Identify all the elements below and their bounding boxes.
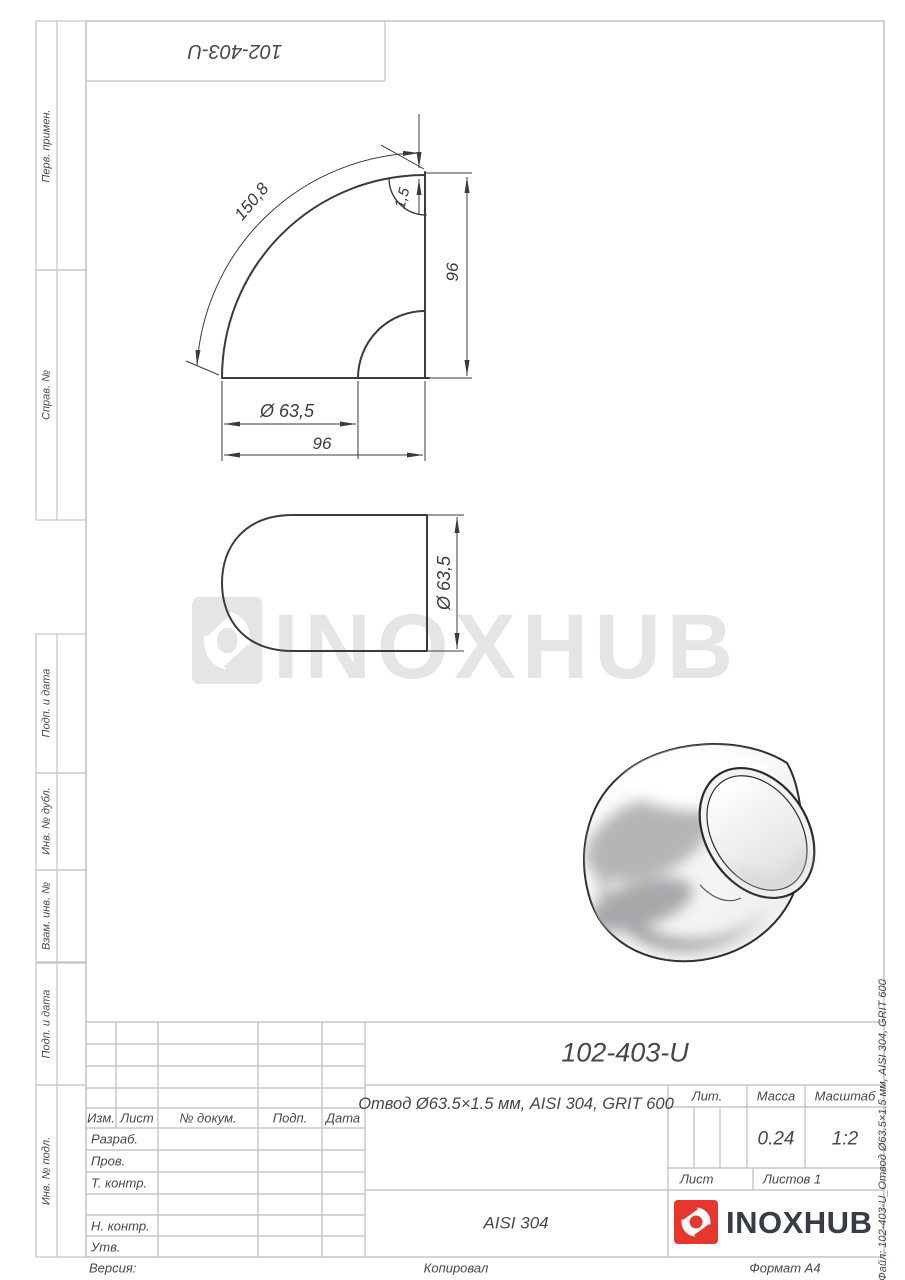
dimension-lines [186, 114, 472, 651]
tb-row-utv: Утв. [91, 1241, 121, 1254]
margin-boxes [36, 21, 86, 1257]
tb-col-podp: Подп. [273, 1112, 308, 1125]
dim-wall-thickness: 1,5 [392, 185, 414, 210]
inoxhub-logo-icon [674, 1200, 718, 1244]
tb-description: Отвод Ø63.5×1.5 мм, AISI 304, GRIT 600 [358, 1096, 674, 1113]
watermark: INOXHUB [192, 596, 739, 698]
drawing-sheet: INOXHUB [0, 0, 905, 1280]
margin-label-sprav-no: Справ. № [42, 370, 53, 420]
margin-label-podp-data-1: Подп. и дата [42, 669, 53, 738]
dim-diameter: Ø 63,5 [259, 401, 315, 421]
margin-label-inv-podl: Инв. № подл. [42, 1137, 53, 1205]
footer-version: Версия: [89, 1262, 136, 1275]
top-stamp: 102-403-U [188, 41, 283, 61]
tb-doc-number: 102-403-U [561, 1040, 689, 1067]
tb-col-dokum: № докум. [179, 1112, 236, 1125]
tb-col-izm: Изм. [87, 1112, 115, 1125]
tb-scale-value: 1:2 [832, 1130, 858, 1149]
footer-copied: Копировал [424, 1262, 489, 1275]
dim-height: 96 [443, 262, 462, 281]
tb-mass-value: 0.24 [758, 1130, 795, 1149]
watermark-text: INOXHUB [273, 596, 739, 698]
inoxhub-logo: INOXHUB [674, 1200, 872, 1244]
margin-label-perv-primen: Перв. примен. [42, 109, 53, 182]
dim-side-diameter: Ø 63,5 [434, 555, 454, 611]
tb-row-prov: Пров. [91, 1155, 125, 1168]
elbow-3d-render [572, 744, 838, 961]
side-file-label: Файл: 102-403-U_Отвод Ø63.5×1.5 мм, AISI… [878, 979, 889, 1280]
footer-format: Формат А4 [749, 1262, 820, 1275]
margin-label-vzam-inv: Взам. инв. № [42, 882, 53, 950]
tb-sheets-label: Листов 1 [763, 1173, 821, 1186]
tb-lit-label: Лит. [692, 1090, 722, 1103]
tb-col-data: Дата [326, 1112, 360, 1125]
margin-label-inv-dubl: Инв. № дубл. [42, 787, 53, 855]
dim-width: 96 [313, 434, 332, 453]
margin-label-podp-data-2: Подп. и дата [42, 990, 53, 1059]
tb-sheet-label: Лист [680, 1173, 713, 1186]
tb-row-razrab: Разраб. [91, 1133, 138, 1146]
inoxhub-logo-text: INOXHUB [726, 1207, 872, 1238]
tb-row-t-kontr: Т. контр. [91, 1177, 147, 1190]
tb-scale-label: Масштаб [815, 1090, 876, 1103]
dim-arc-length: 150,8 [231, 179, 273, 224]
tb-col-list: Лист [120, 1112, 153, 1125]
tb-material: AISI 304 [483, 1215, 548, 1232]
tb-mass-label: Масса [757, 1090, 795, 1103]
tb-row-n-kontr: Н. контр. [91, 1220, 150, 1233]
